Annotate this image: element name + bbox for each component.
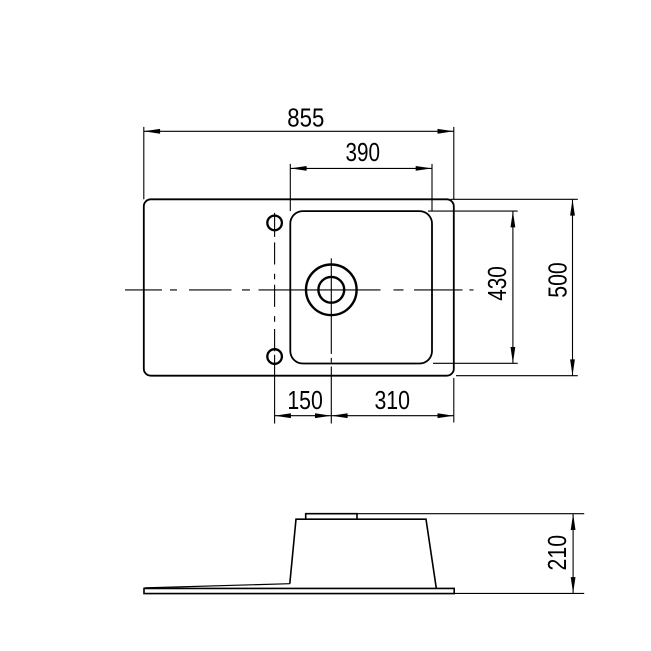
- svg-text:310: 310: [374, 385, 410, 415]
- svg-text:150: 150: [287, 385, 323, 415]
- svg-text:500: 500: [543, 262, 573, 298]
- svg-text:430: 430: [482, 266, 512, 301]
- svg-text:855: 855: [287, 102, 324, 132]
- svg-text:390: 390: [346, 137, 381, 167]
- svg-text:210: 210: [542, 535, 572, 571]
